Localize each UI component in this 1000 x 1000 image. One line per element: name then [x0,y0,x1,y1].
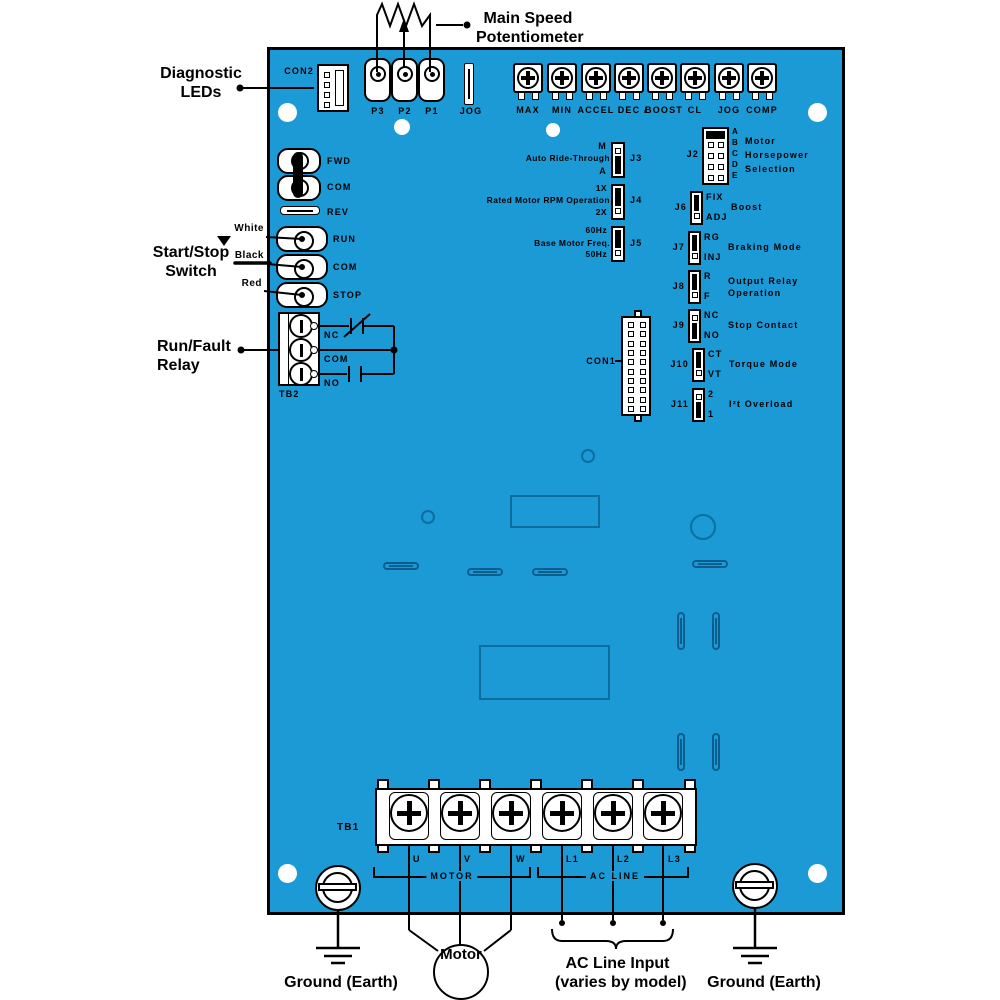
silkscreen-circle [581,449,595,463]
j3-top-label: M [598,141,607,151]
com-dir-label: COM [327,182,352,192]
pcb-board [267,47,845,915]
con2-label: CON2 [284,66,314,76]
pot-label-jog2: JOG [718,105,741,115]
j8-bottom-label: F [704,291,711,301]
callout-diagnostic-leds: Diagnostic LEDs [152,64,250,102]
wire-link [712,612,720,650]
fwd-label: FWD [327,156,351,166]
callout-run-fault-relay: Run/Fault Relay [157,337,231,375]
j2-pin-d: D [732,160,739,169]
terminal-p1 [418,58,445,102]
silkscreen-rect [479,645,610,700]
wire-link [712,733,720,771]
j7-top-label: RG [704,232,720,242]
j11-label: I²t Overload [729,399,793,409]
jumper-j11 [692,388,705,422]
pot-comp [747,63,777,93]
pot-dec [614,63,644,93]
p3-label: P3 [371,106,384,116]
pot-boost [647,63,677,93]
j5-label: Base Motor Freq. [534,238,610,248]
pot-label-min: MIN [552,105,572,115]
j3-id: J3 [630,153,642,163]
j7-label: Braking Mode [728,242,802,252]
j5-id: J5 [630,238,642,248]
j9-bottom-label: NO [704,330,720,340]
pot-label-boost: BOOST [645,105,683,115]
run-label: RUN [333,234,356,244]
callout-ground-left: Ground (Earth) [284,973,398,992]
j10-bottom-label: VT [708,369,722,379]
terminal-p3 [364,58,391,102]
j4-top-label: 1X [596,183,607,193]
j10-label: Torque Mode [729,359,798,369]
con1-label: CON1 [586,356,616,366]
silkscreen-circle [421,510,435,524]
mounting-hole [278,103,297,122]
wire-link [677,733,685,771]
callout-start-stop-switch: Start/Stop Switch [148,243,234,281]
ground-symbol-left [316,911,360,963]
tb1-group-acline: AC LINE [586,871,644,881]
wire-link [383,562,419,570]
pot-label-accel: ACCEL [578,105,615,115]
jog-link [464,63,474,105]
jumper-j4 [611,184,625,220]
wire-white-label: White [234,223,264,234]
j2-id: J2 [687,149,699,159]
pot-min [547,63,577,93]
pot-jog [714,63,744,93]
tb1-name: TB1 [337,822,360,833]
motor-symbol: Motor [433,944,489,1000]
wire-red-label: Red [242,278,262,289]
com-ss-label: COM [333,262,358,272]
j6-label: Boost [731,202,763,212]
silkscreen-rect [510,495,600,528]
j3-label: Auto Ride-Through [526,153,610,163]
ac-line-brace [552,929,673,949]
callout-main-speed-pot: Main Speed Potentiometer [476,9,580,47]
jumper-j3 [611,142,625,178]
j2-pin-e: E [732,171,738,180]
j6-bottom-label: ADJ [706,212,728,222]
stop-label: STOP [333,290,362,300]
terminal-run [276,226,328,252]
pot-label-comp: COMP [746,105,778,115]
j2-label-3: Selection [745,164,796,174]
jumper-j8 [688,270,701,304]
j11-id: J11 [671,399,689,409]
j11-top-label: 2 [708,389,714,399]
tb1-label-v: V [464,854,471,864]
j6-top-label: FIX [706,192,724,202]
con2-connector [317,64,349,112]
con1-connector [621,316,651,416]
j11-bottom-label: 1 [708,409,714,419]
j7-id: J7 [673,242,685,252]
j7-bottom-label: INJ [704,252,722,262]
rev-label: REV [327,207,349,217]
callout-ground-right: Ground (Earth) [707,973,821,992]
terminal-stop [276,282,328,308]
wire-link [677,612,685,650]
callout-ac-line-input: AC Line Input (varies by model) [555,954,680,992]
silkscreen-circle [690,514,716,540]
j4-bottom-label: 2X [596,207,607,217]
j2-label-1: Motor [745,136,776,146]
ground-symbol-right [733,909,777,963]
tb2-name: TB2 [279,389,300,399]
pot-max [513,63,543,93]
jumper-j9 [688,309,701,343]
j8-label-1: Output Relay [728,276,798,286]
pot-cl [680,63,710,93]
rev-link [280,206,320,215]
mounting-hole [278,864,297,883]
j6-id: J6 [675,202,687,212]
wire-link [467,568,503,576]
ground-screw-right [732,863,778,909]
pot-label-max: MAX [516,105,540,115]
j8-top-label: R [704,271,712,281]
j2-label-2: Horsepower [745,150,809,160]
p1-label: P1 [425,106,438,116]
jumper-j2 [702,127,729,185]
j9-id: J9 [673,320,685,330]
pot-label-dec: DEC [618,105,641,115]
j2-pin-a: A [732,127,739,136]
jumper-j10 [692,348,705,382]
j3-bottom-label: A [599,166,607,176]
j5-bottom-label: 50Hz [586,249,607,259]
jumper-j7 [688,231,701,265]
tb1-label-l1: L1 [566,854,579,864]
j9-label: Stop Contact [728,320,798,330]
j10-id: J10 [670,359,689,369]
jog-label: JOG [460,106,483,116]
board-hole [546,123,560,137]
j9-top-label: NC [704,310,719,320]
j8-id: J8 [673,281,685,291]
jumper-j5 [611,226,625,262]
j2-pin-b: B [732,138,739,147]
p2-label: P2 [398,106,411,116]
tb1-label-w: W [516,854,526,864]
mounting-hole [808,864,827,883]
j4-id: J4 [630,195,642,205]
j5-top-label: 60Hz [586,225,607,235]
diagram-canvas: CON2 P3 P2 P1 JOG MAX MIN ACCEL DEC / BO… [0,0,1000,1000]
jumper-j6 [690,191,703,225]
terminal-com-ss [276,254,328,280]
wire-link [692,560,728,568]
tb1-group-motor: MOTOR [426,871,477,881]
direction-jumper-bar [293,152,303,198]
board-hole [394,119,410,135]
tb1-label-l2: L2 [617,854,630,864]
wire-link [532,568,568,576]
pot-label-cl: CL [688,105,702,115]
j8-label-2: Operation [728,288,781,298]
tb2-com-label: COM [324,354,349,364]
terminal-p2 [391,58,418,102]
tb2-nc-label: NC [324,330,339,340]
mounting-hole [808,103,827,122]
j10-top-label: CT [708,349,722,359]
tb1-label-l3: L3 [668,854,681,864]
tb2-no-label: NO [324,378,340,388]
ground-screw-left [315,865,361,911]
wire-black-label: Black [235,250,264,261]
tb1-label-u: U [413,854,421,864]
j2-pin-c: C [732,149,739,158]
j4-label: Rated Motor RPM Operation [487,195,610,205]
pot-accel [581,63,611,93]
